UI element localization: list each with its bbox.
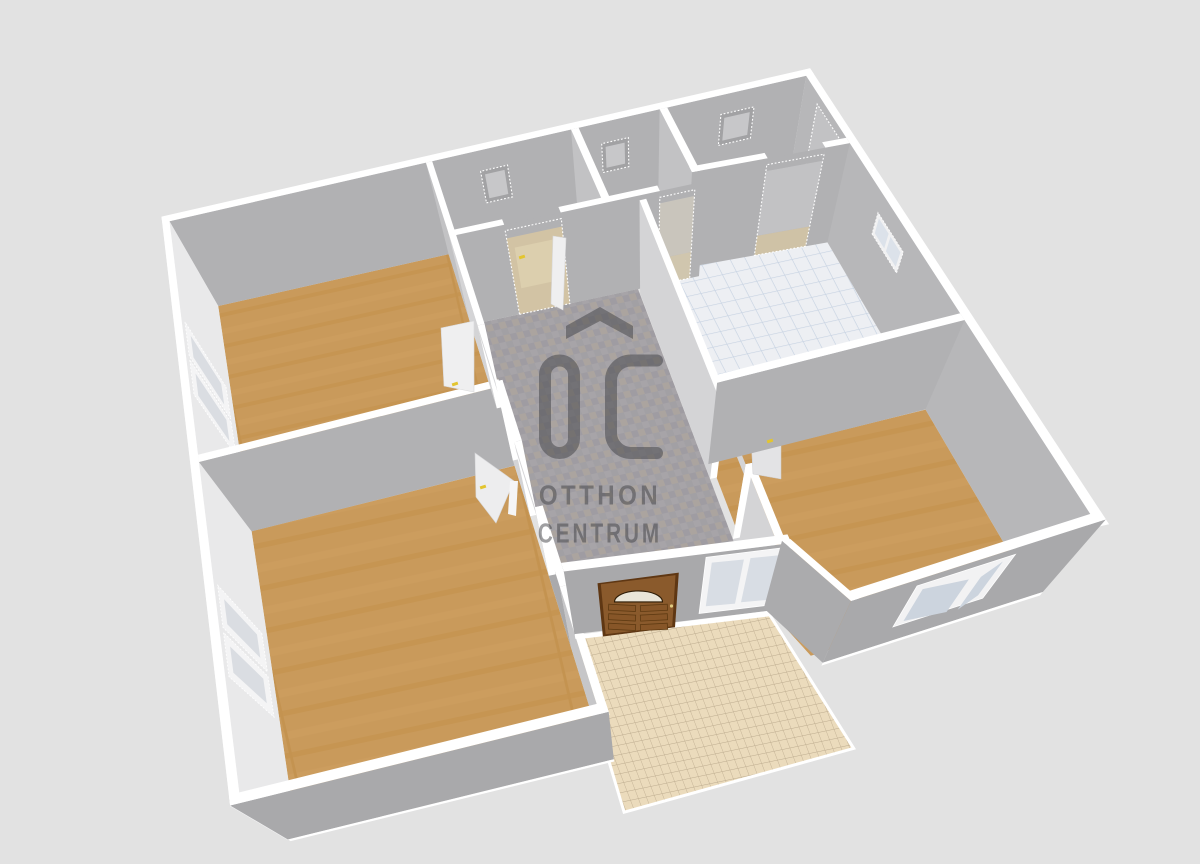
svg-text:CENTRUM: CENTRUM: [538, 519, 662, 550]
svg-text:OTTHON: OTTHON: [539, 479, 661, 511]
